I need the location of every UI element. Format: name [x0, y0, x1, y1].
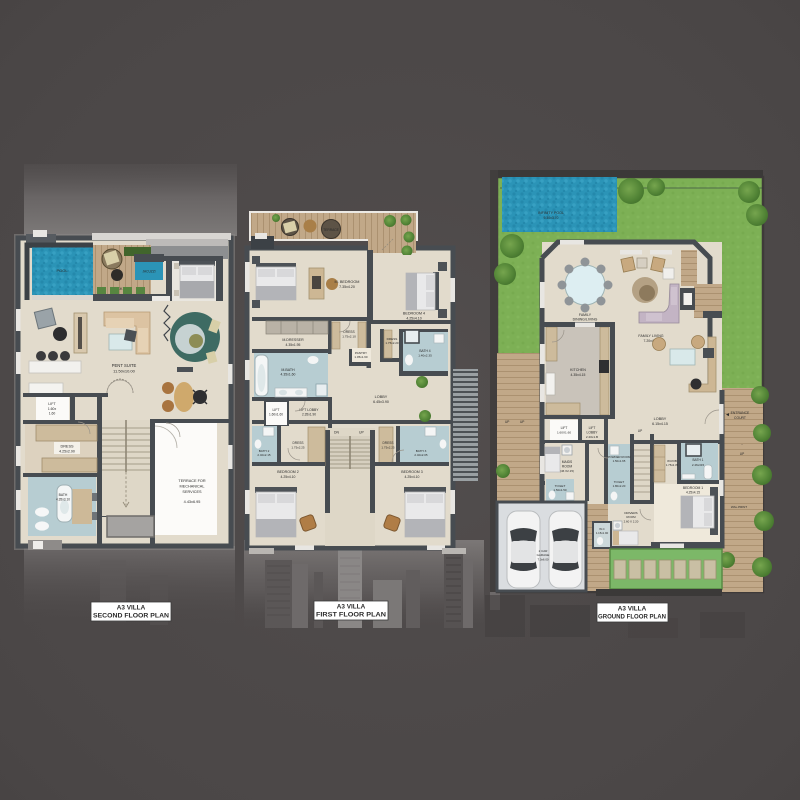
svg-text:MAIDS: MAIDS: [562, 460, 573, 464]
svg-text:2.40x2.05: 2.40x2.05: [414, 453, 428, 457]
svg-text:(46 X2.15): (46 X2.15): [560, 469, 574, 473]
svg-text:LOBBY: LOBBY: [587, 431, 599, 435]
svg-text:6.45x3.90: 6.45x3.90: [373, 400, 389, 404]
svg-text:SERVICES: SERVICES: [182, 490, 202, 494]
svg-text:1.80x2.20: 1.80x2.20: [613, 484, 626, 488]
svg-text:LIFT: LIFT: [273, 408, 280, 412]
svg-text:BEDROOM 3: BEDROOM 3: [401, 470, 423, 474]
svg-text:DRESS: DRESS: [293, 441, 304, 445]
svg-text:2.35x1.90: 2.35x1.90: [302, 413, 316, 417]
svg-text:DN: DN: [334, 430, 339, 434]
svg-text:DRESS: DRESS: [343, 330, 355, 334]
svg-text:4.43x6.95: 4.43x6.95: [184, 500, 201, 504]
svg-text:A3 VILLA: A3 VILLA: [337, 604, 366, 611]
svg-text:1.75x2.35: 1.75x2.35: [666, 463, 679, 467]
svg-text:11.50x10.00: 11.50x10.00: [113, 369, 135, 374]
svg-text:1.40x2.35: 1.40x2.35: [418, 353, 432, 357]
svg-text:4.25x4.10: 4.25x4.10: [281, 475, 296, 479]
svg-text:1.60: 1.60: [49, 412, 56, 416]
svg-text:UP: UP: [638, 429, 642, 433]
svg-text:DRESS: DRESS: [60, 445, 74, 449]
svg-text:7.0x6.00: 7.0x6.00: [537, 557, 548, 561]
svg-text:INFINITY POOL: INFINITY POOL: [538, 211, 564, 215]
svg-text:1.60X1.60: 1.60X1.60: [557, 431, 571, 435]
svg-text:COURT: COURT: [734, 416, 746, 420]
svg-text:GROUND FLOOR PLAN: GROUND FLOOR PLAN: [598, 614, 666, 621]
svg-text:1.75x2.20: 1.75x2.20: [385, 341, 399, 345]
svg-text:LOBBY: LOBBY: [654, 417, 667, 421]
svg-text:BATH 1: BATH 1: [693, 458, 704, 462]
svg-text:1.50x1.50: 1.50x1.50: [553, 488, 567, 492]
svg-text:POOL: POOL: [56, 268, 68, 273]
svg-text:FIRST FLOOR PLAN: FIRST FLOOR PLAN: [316, 612, 386, 619]
svg-text:TERRACE FOR: TERRACE FOR: [178, 479, 205, 483]
svg-text:◄: ◄: [725, 412, 730, 418]
svg-text:DINING/LIVING: DINING/LIVING: [573, 318, 598, 322]
svg-text:2.60 X 2.20: 2.60 X 2.20: [624, 519, 639, 523]
svg-text:1.15x1.90: 1.15x1.90: [596, 531, 609, 535]
svg-text:M.DRESSER: M.DRESSER: [282, 338, 304, 342]
svg-text:1.05x1.60: 1.05x1.60: [354, 355, 368, 359]
svg-text:4.35x1.95: 4.35x1.95: [286, 343, 301, 347]
svg-text:DRESS: DRESS: [383, 441, 394, 445]
svg-text:ENTRANCE: ENTRANCE: [731, 411, 750, 415]
svg-text:A3 VILLA: A3 VILLA: [117, 605, 146, 612]
svg-text:BEDROOM 2: BEDROOM 2: [277, 470, 299, 474]
svg-text:2.46x315: 2.46x315: [692, 463, 705, 467]
svg-text:BATH: BATH: [59, 493, 68, 497]
svg-text:6.15x4.15: 6.15x4.15: [652, 422, 668, 426]
svg-text:1.60x: 1.60x: [48, 407, 57, 411]
svg-text:LIFT: LIFT: [561, 426, 568, 430]
svg-text:4.25x4.10: 4.25x4.10: [406, 316, 421, 320]
svg-text:4.35x3.10: 4.35x3.10: [56, 498, 70, 502]
svg-text:KITCHEN: KITCHEN: [570, 368, 586, 372]
svg-text:BATH 4: BATH 4: [419, 349, 430, 353]
svg-text:UP: UP: [740, 452, 744, 456]
svg-text:M. BEDROOM: M. BEDROOM: [335, 280, 360, 284]
svg-text:ROOM: ROOM: [562, 465, 573, 469]
svg-text:LIFT: LIFT: [48, 402, 56, 406]
svg-text:2.20x1.B: 2.20x1.B: [586, 435, 598, 439]
svg-text:JACUZZI: JACUZZI: [142, 270, 155, 274]
svg-text:7.35x4.20: 7.35x4.20: [339, 285, 355, 289]
svg-text:1.60x1.60: 1.60x1.60: [269, 413, 283, 417]
svg-text:1.75x2.10: 1.75x2.10: [342, 334, 356, 338]
svg-text:4.35x1.60: 4.35x1.60: [281, 373, 296, 377]
svg-text:BEDROOM 4: BEDROOM 4: [403, 312, 425, 316]
svg-text:LIFT: LIFT: [589, 426, 596, 430]
svg-text:SECOND FLOOR PLAN: SECOND FLOOR PLAN: [93, 613, 169, 620]
svg-text:1.75x2.25: 1.75x2.25: [291, 445, 305, 449]
svg-text:1.75x2.25: 1.75x2.25: [381, 445, 395, 449]
svg-text:4.25x2.90: 4.25x2.90: [59, 450, 75, 454]
svg-text:PENT SUITE: PENT SUITE: [112, 363, 137, 368]
svg-text:WAL.PRINT: WAL.PRINT: [731, 505, 747, 509]
svg-text:4.25x4.15: 4.25x4.15: [686, 491, 700, 495]
svg-text:4.35x4.15: 4.35x4.15: [571, 373, 586, 377]
svg-text:9.30x3.70: 9.30x3.70: [544, 216, 559, 220]
svg-text:FAMILY: FAMILY: [579, 313, 592, 317]
svg-text:MECHANICAL: MECHANICAL: [180, 485, 205, 489]
svg-text:UP: UP: [520, 420, 524, 424]
svg-text:A3 VILLA: A3 VILLA: [618, 606, 647, 613]
svg-text:M.BATH: M.BATH: [281, 368, 295, 372]
svg-text:1.50x1.65: 1.50x1.65: [613, 459, 626, 463]
svg-text:2.40x2.15: 2.40x2.15: [257, 453, 271, 457]
svg-text:UP: UP: [505, 420, 509, 424]
svg-text:LOBBY: LOBBY: [375, 395, 388, 399]
svg-text:4.25x4.10: 4.25x4.10: [405, 475, 420, 479]
svg-text:BEDROOM 1: BEDROOM 1: [683, 486, 703, 490]
svg-text:LIFT LOBBY: LIFT LOBBY: [299, 408, 319, 412]
svg-text:TERRACE: TERRACE: [323, 228, 340, 232]
svg-text:UP: UP: [359, 430, 364, 434]
